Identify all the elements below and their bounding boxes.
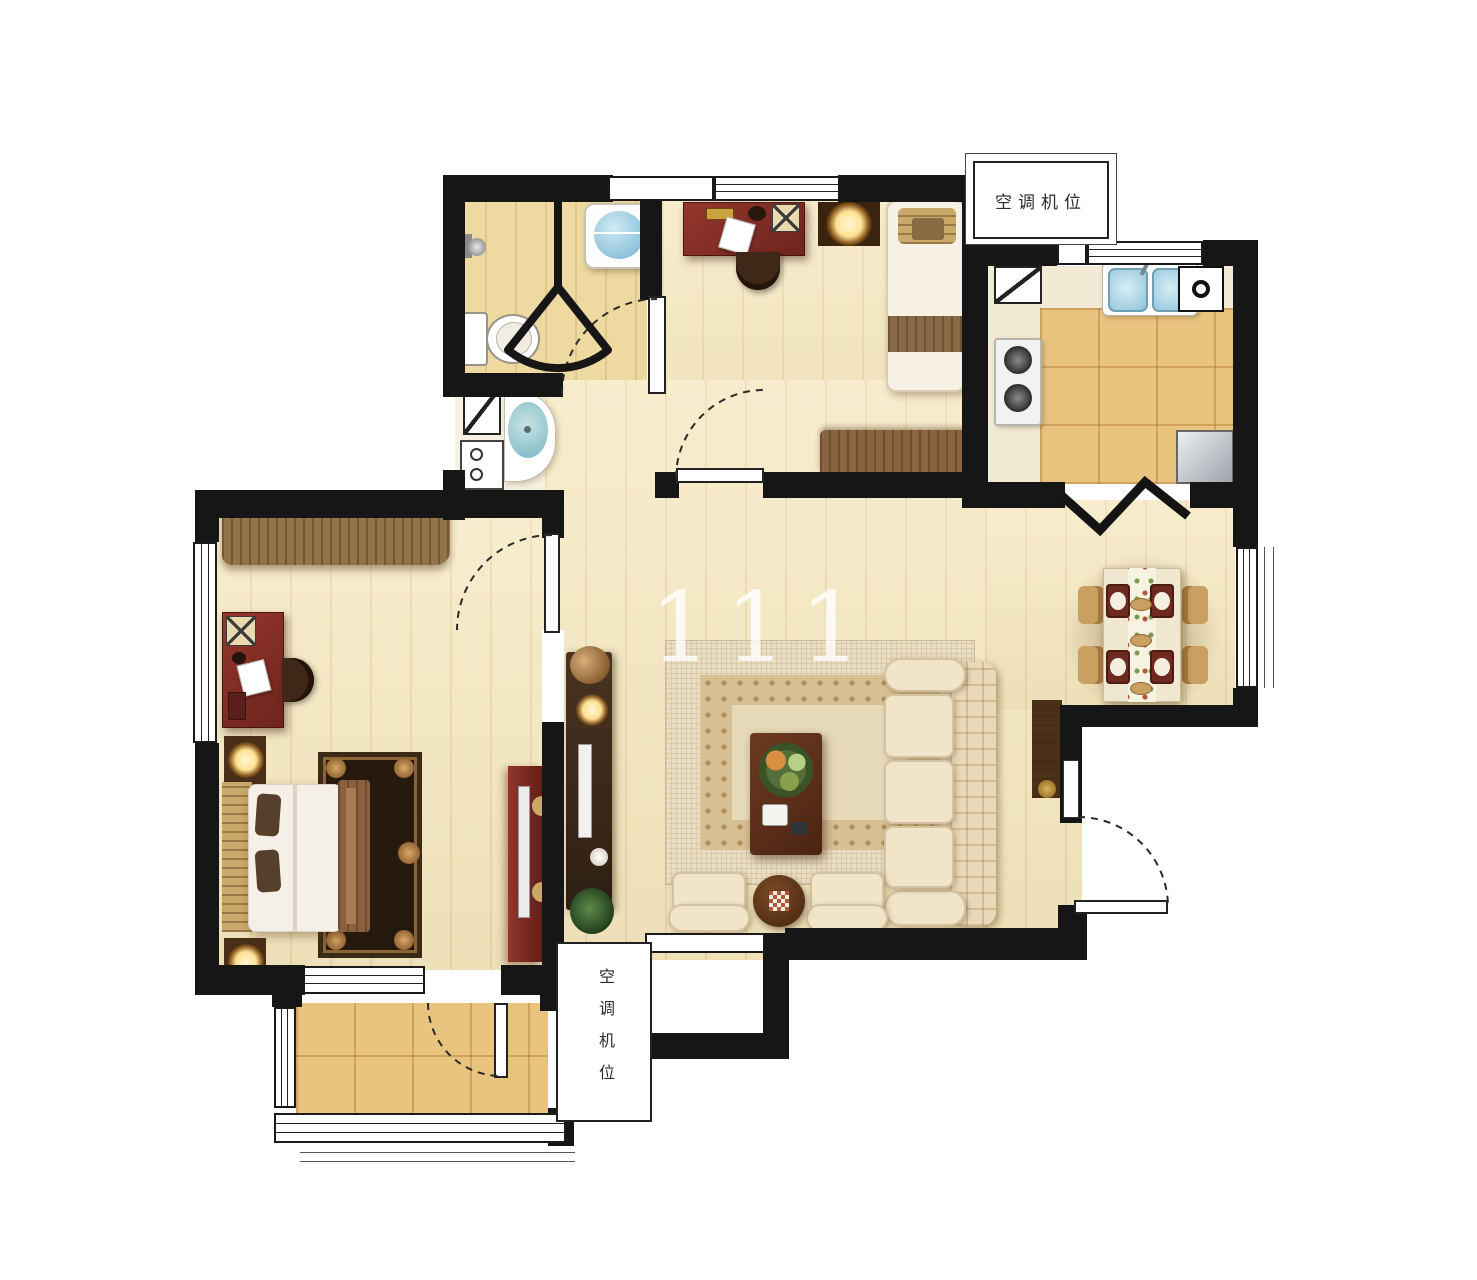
bedroom-desk-drawer [228,692,246,720]
bedroom-door-leaf [544,533,560,633]
water-heater-drum [594,211,644,259]
vent-ring-icon [1192,280,1210,298]
ac-top-label: 空调机位 [995,188,1087,213]
cabinet-flower [1038,780,1056,798]
ac-box-bottom: 空调机位 [556,942,652,1122]
rug-rosette [326,930,346,950]
window-balcony-left [274,1007,296,1108]
sofa-armrest [884,658,966,692]
divider-door-frame [542,630,564,722]
nightstand-lamp-glow [228,742,264,778]
bedroom-desk-phone [232,652,246,664]
ac-platform-sill [645,933,765,953]
rug-rosette [394,758,414,778]
outer-line-balcony [300,1152,575,1162]
window-balcony-bottom [274,1113,566,1143]
desk-monitor [748,206,766,221]
bedroom-desk-lamp [226,616,256,646]
serving-bowl [1130,682,1152,695]
toilet-seat [496,322,532,356]
entry-door-frame [1063,760,1079,818]
floor-plan: 空调机位 空调机位 111 [0,0,1477,1280]
serving-bowl [1130,634,1152,647]
outer-line-dining [1264,547,1274,688]
single-bed-blanket [888,316,964,352]
wall-bath-study [640,200,662,300]
fridge [1176,430,1234,484]
console-plant [570,888,614,934]
desk-lamp-box [772,204,800,232]
dining-chair [1078,646,1104,684]
table-remote [792,822,808,835]
dining-chair [1182,646,1208,684]
wall-balcony-post-left [272,975,302,1007]
stove-burner [1004,346,1032,374]
window-bedroom-left [193,542,217,743]
sofa-seat-cushion [884,694,954,758]
balcony-door-leaf [494,1003,508,1078]
wall-study-bottom-right [763,472,988,498]
wall-kitchen-right [1233,240,1258,512]
armchair-back [668,904,750,932]
bed-pillow [255,793,282,837]
washing-machine [460,440,504,490]
console-lamp-glow [576,694,608,726]
wall-divider-lower [542,722,564,977]
window-top-box [608,176,714,201]
entry-alcove [1082,727,1260,958]
wall-dining-right-upper [1233,505,1258,547]
toilet-tank [462,312,488,366]
ac-box-top: 空调机位 [973,161,1109,239]
table-wreath [752,738,820,802]
kitchen-cabinet [994,266,1042,304]
table-tray [762,804,788,826]
study-lamp-glow [826,202,872,246]
console-flowers [570,646,610,684]
dining-chair [1078,586,1104,624]
window-top-lines [714,176,840,201]
study-dresser [820,430,968,474]
window-bedroom-balcony [303,966,425,994]
bed-footboard-panel [346,788,356,924]
washer-knob [470,448,483,461]
wall-kitchen-bottom-left [985,482,1065,508]
window-dining-right [1236,547,1258,688]
wall-bedroom-left-lower [195,743,219,977]
plate [1110,658,1126,676]
rug-rosette [394,930,414,950]
console-white-flower [590,848,608,866]
wall-kitchen-bottom-right [1190,482,1258,508]
bed-pillow [255,849,282,893]
side-table-board [768,890,790,912]
wall-step-horizontal [645,1033,767,1059]
wall-bedroom-left-upper [195,490,219,542]
wall-bath-top [443,175,613,202]
plate [1110,592,1126,610]
single-bed-cushion [912,218,944,240]
plate [1154,658,1170,676]
wall-bedroom-top [195,490,564,518]
ac-bottom-label: 空调机位 [592,968,616,1096]
sofa-seat-cushion [884,760,954,824]
shower-head-disc [468,238,486,256]
console-tv [578,744,592,838]
washer-knob [470,468,483,481]
dining-chair [1182,586,1208,624]
wall-bath-bottom [443,373,563,397]
wall-dining-bottom [1060,705,1258,727]
serving-bowl [1130,598,1152,611]
bathroom-door-leaf [648,296,666,394]
entry-door-leaf [1074,900,1168,914]
wall-divider-upper [542,490,564,538]
plate [1154,592,1170,610]
basin-faucet [524,426,531,433]
sofa-armrest [884,890,966,926]
balcony-floor [296,1003,548,1115]
bedroom-tv [518,786,530,918]
sofa-back [950,662,996,926]
wall-bath-left [443,175,465,377]
wall-living-bottom [785,928,1087,960]
sofa-seat-cushion [884,826,954,888]
rug-rosette [326,758,346,778]
stove-burner [1004,384,1032,412]
rug-rosette [398,842,420,864]
study-door-leaf [676,468,764,483]
